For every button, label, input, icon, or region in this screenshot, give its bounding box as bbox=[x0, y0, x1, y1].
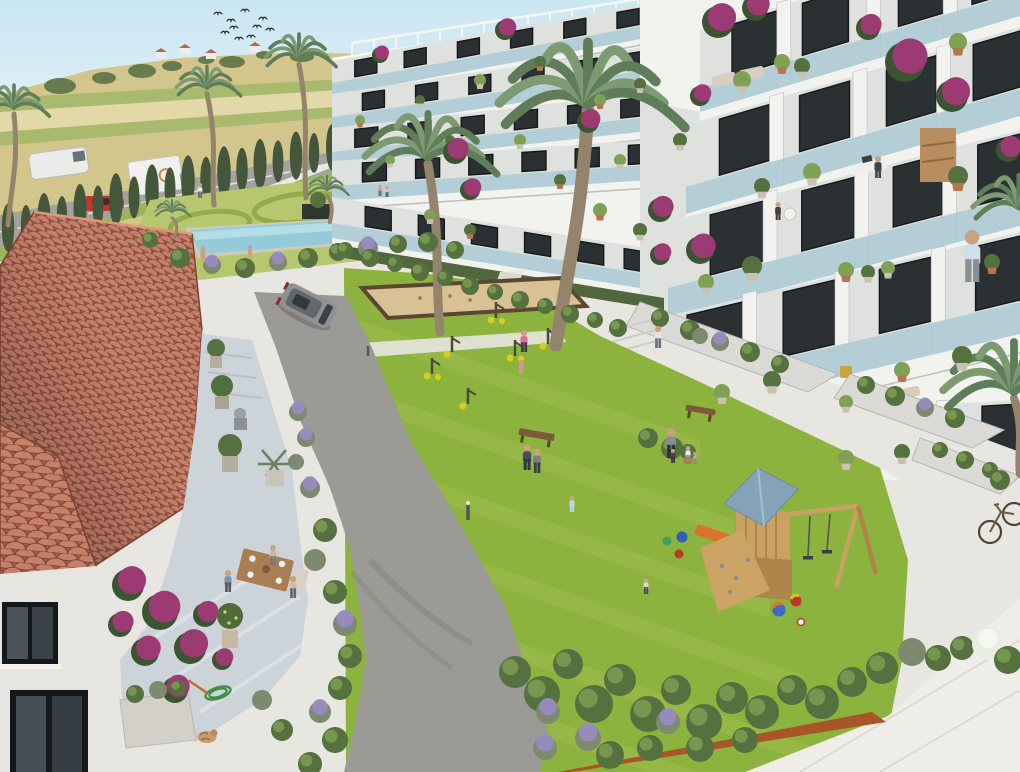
lemon bbox=[227, 621, 230, 624]
toy-bucket bbox=[677, 532, 688, 543]
plant-pot bbox=[841, 464, 851, 470]
plant-pot bbox=[636, 235, 644, 241]
tree-cluster bbox=[92, 72, 116, 84]
person-head bbox=[225, 570, 231, 576]
person-leg bbox=[293, 588, 296, 598]
plant-pot bbox=[387, 164, 393, 168]
window bbox=[362, 90, 384, 110]
person-head bbox=[198, 183, 202, 187]
plant-pot bbox=[757, 192, 767, 198]
house bbox=[250, 46, 260, 52]
plant-pot bbox=[426, 219, 433, 224]
person-leg bbox=[776, 212, 778, 220]
window bbox=[578, 241, 604, 265]
person-leg bbox=[658, 338, 661, 348]
plant-pot bbox=[683, 458, 693, 464]
person-leg bbox=[973, 259, 979, 282]
window bbox=[365, 206, 391, 230]
gym-seat bbox=[444, 351, 451, 358]
house bbox=[180, 48, 190, 54]
person-head bbox=[248, 245, 252, 249]
person-leg bbox=[201, 255, 203, 262]
person-leg bbox=[524, 342, 527, 352]
person-head bbox=[965, 230, 980, 245]
bollard-cap bbox=[466, 501, 470, 505]
person-leg bbox=[673, 457, 675, 463]
cypress bbox=[109, 173, 123, 225]
person-leg bbox=[537, 462, 540, 473]
window-sill bbox=[0, 664, 62, 669]
person-head bbox=[671, 449, 675, 453]
gym-seat bbox=[488, 317, 495, 324]
person-head bbox=[655, 326, 661, 332]
tree-cluster bbox=[162, 61, 182, 71]
lemon bbox=[223, 610, 226, 613]
plant-pot bbox=[956, 363, 968, 371]
person-head bbox=[570, 496, 574, 500]
cypress bbox=[309, 133, 319, 173]
person-leg bbox=[695, 459, 696, 464]
plant-pot bbox=[987, 268, 997, 274]
climbing-hold bbox=[728, 590, 732, 594]
person-head bbox=[523, 444, 530, 451]
person-leg bbox=[778, 212, 780, 220]
shrub bbox=[898, 638, 926, 666]
person-leg bbox=[379, 191, 380, 196]
tree-cluster bbox=[128, 64, 156, 78]
window bbox=[617, 8, 639, 28]
person-head bbox=[519, 360, 523, 364]
plant-pot bbox=[864, 277, 872, 283]
plant-pot bbox=[884, 273, 892, 279]
cafe-table bbox=[784, 208, 796, 220]
plant-pot bbox=[841, 276, 851, 282]
plant-pot bbox=[357, 124, 363, 128]
tree-cluster bbox=[219, 56, 245, 68]
person-leg bbox=[270, 556, 272, 565]
pot bbox=[210, 356, 222, 368]
person-head bbox=[378, 185, 381, 188]
person-leg bbox=[203, 255, 205, 262]
person-leg bbox=[528, 459, 531, 470]
window bbox=[404, 48, 426, 68]
person-leg bbox=[875, 168, 878, 178]
person-head bbox=[644, 578, 648, 582]
plant-pot bbox=[476, 84, 483, 89]
plant-pot bbox=[777, 68, 787, 74]
plant-pot bbox=[636, 88, 643, 93]
person-head bbox=[201, 246, 205, 250]
plant-pot bbox=[701, 288, 711, 294]
boule bbox=[448, 294, 452, 298]
gym-seat bbox=[499, 318, 505, 324]
climbing-hold bbox=[734, 576, 738, 580]
olive-foliage bbox=[211, 375, 233, 397]
person-leg bbox=[200, 191, 202, 198]
person-leg bbox=[521, 368, 523, 374]
swing-seat bbox=[803, 556, 813, 560]
person-head bbox=[686, 446, 690, 450]
person-leg bbox=[248, 252, 250, 258]
person-leg bbox=[686, 455, 688, 462]
plant-pot bbox=[953, 48, 964, 55]
person-leg bbox=[644, 587, 646, 594]
ball bbox=[798, 619, 805, 626]
plant-pot bbox=[737, 86, 748, 93]
olive-foliage bbox=[218, 434, 242, 458]
plant-pot bbox=[807, 178, 818, 185]
toy-bucket bbox=[663, 537, 672, 546]
gym-seat bbox=[435, 374, 441, 380]
shrub bbox=[252, 690, 272, 710]
person-head bbox=[534, 449, 541, 456]
person-leg bbox=[693, 459, 694, 464]
scene-canvas bbox=[0, 0, 1020, 772]
gym-seat bbox=[540, 343, 547, 350]
pot bbox=[222, 456, 238, 472]
person-leg bbox=[290, 588, 293, 598]
person-leg bbox=[387, 192, 388, 197]
plant-pot bbox=[842, 407, 850, 413]
window bbox=[564, 18, 586, 38]
window bbox=[783, 279, 841, 357]
person-head bbox=[270, 545, 276, 551]
window-glass bbox=[16, 696, 46, 772]
plant-pot bbox=[897, 458, 907, 464]
cypress bbox=[129, 176, 140, 218]
person-leg bbox=[521, 342, 524, 352]
plant-pot bbox=[556, 184, 563, 189]
plant-pot bbox=[952, 183, 964, 191]
boule bbox=[468, 298, 472, 302]
person-leg bbox=[380, 191, 381, 196]
cypress bbox=[273, 140, 284, 182]
plant-pot bbox=[596, 104, 603, 109]
pot bbox=[266, 470, 284, 486]
plant-pot bbox=[676, 145, 684, 151]
plant-pot bbox=[536, 66, 543, 71]
gym-seat bbox=[507, 355, 514, 362]
person-leg bbox=[965, 259, 971, 282]
gym-seat bbox=[424, 373, 431, 380]
cypress bbox=[254, 139, 267, 189]
person-leg bbox=[667, 445, 671, 458]
person-head bbox=[693, 452, 696, 455]
window-glass bbox=[32, 607, 53, 659]
plant-pot bbox=[897, 376, 907, 382]
shrub bbox=[288, 454, 304, 470]
boule bbox=[418, 296, 422, 300]
statue bbox=[234, 408, 247, 430]
plant-pot bbox=[466, 234, 473, 239]
house bbox=[206, 53, 216, 59]
van-windshield bbox=[72, 150, 85, 162]
climbing-hold bbox=[720, 564, 724, 568]
person-leg bbox=[671, 457, 673, 463]
window bbox=[522, 151, 546, 172]
person-leg bbox=[524, 459, 527, 470]
person-leg bbox=[228, 582, 231, 592]
toy-bucket bbox=[675, 550, 684, 559]
person-leg bbox=[250, 252, 252, 258]
person-leg bbox=[688, 455, 690, 462]
person-leg bbox=[225, 582, 228, 592]
shrub bbox=[692, 328, 708, 344]
person-leg bbox=[570, 505, 572, 512]
cat-head bbox=[211, 730, 218, 737]
plant-pot bbox=[767, 386, 778, 393]
person-leg bbox=[878, 168, 881, 178]
pot bbox=[222, 630, 238, 648]
window-glass bbox=[7, 607, 28, 659]
person-head bbox=[875, 156, 881, 162]
plant-pot bbox=[797, 72, 807, 78]
person-leg bbox=[198, 191, 200, 198]
person-head bbox=[667, 428, 675, 436]
pot bbox=[215, 396, 229, 409]
olive-foliage bbox=[207, 339, 225, 357]
shrub bbox=[149, 681, 167, 699]
person-head bbox=[521, 330, 527, 336]
architectural-render bbox=[0, 0, 1020, 772]
statue-base bbox=[234, 418, 247, 430]
person-leg bbox=[534, 462, 537, 473]
plant-pot bbox=[596, 215, 604, 221]
plant-pot bbox=[717, 398, 727, 404]
window bbox=[355, 57, 377, 77]
window-glass bbox=[52, 696, 82, 772]
planter-shrub bbox=[310, 192, 326, 208]
gym-seat bbox=[460, 403, 467, 410]
plant-pot bbox=[746, 273, 758, 281]
shrub bbox=[304, 549, 326, 571]
person-leg bbox=[572, 505, 574, 512]
tree-cluster bbox=[44, 78, 76, 94]
plant-pot bbox=[417, 104, 423, 108]
lemon-foliage bbox=[217, 603, 243, 629]
person-head bbox=[290, 576, 296, 582]
swing-seat bbox=[822, 550, 832, 554]
person-leg bbox=[646, 587, 648, 594]
plant-pot bbox=[516, 144, 523, 149]
plant-pot bbox=[616, 164, 623, 169]
person-leg bbox=[273, 556, 275, 565]
cypress bbox=[236, 148, 247, 192]
person-leg bbox=[519, 368, 521, 374]
window bbox=[976, 233, 1020, 311]
person-leg bbox=[386, 192, 387, 197]
window bbox=[525, 232, 551, 256]
person-head bbox=[775, 202, 780, 207]
person-head bbox=[385, 186, 388, 189]
house bbox=[156, 52, 166, 58]
climbing-hold bbox=[746, 558, 750, 562]
lemon bbox=[234, 616, 237, 619]
cypress bbox=[290, 132, 302, 180]
window bbox=[457, 38, 479, 58]
person-leg bbox=[655, 338, 658, 348]
